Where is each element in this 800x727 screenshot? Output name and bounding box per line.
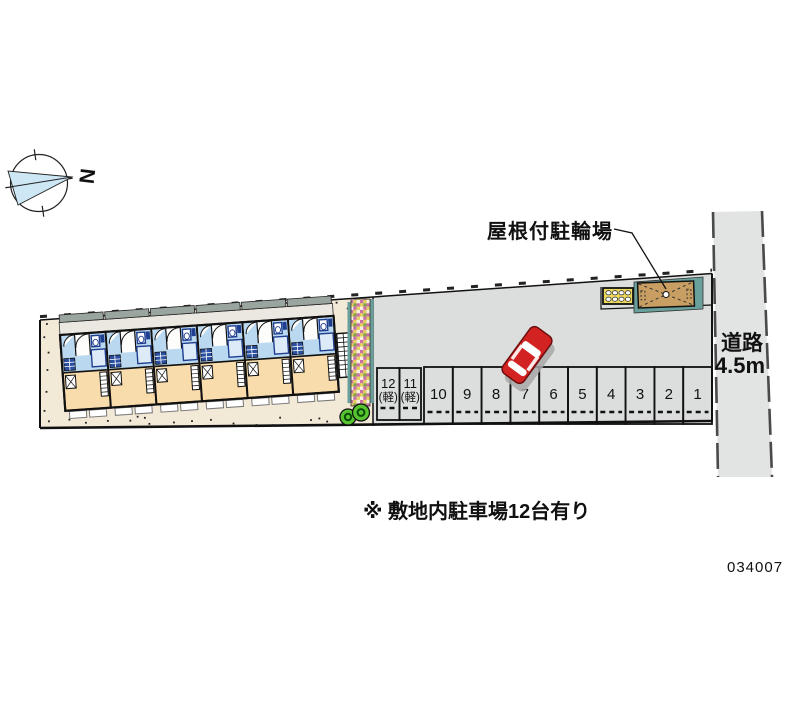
- kei-label: (軽): [379, 391, 398, 404]
- road-name-label: 道路: [721, 331, 764, 355]
- compass: N: [1, 145, 99, 222]
- stall-number: 4: [607, 386, 615, 403]
- planting-strip: [348, 299, 374, 406]
- note-text: ※ 敷地内駐車場12台有り: [363, 499, 590, 523]
- stall-number: 10: [430, 386, 447, 403]
- stall-number: 11: [404, 376, 418, 391]
- stall-number: 12: [381, 376, 395, 391]
- stall-number: 5: [578, 386, 586, 403]
- tree-icon: [353, 404, 370, 421]
- road-width-label: 4.5m: [715, 353, 765, 378]
- stall-number: 1: [693, 386, 701, 403]
- stall-number: 2: [665, 386, 673, 403]
- stall-number: 6: [549, 386, 557, 403]
- bicycle-shed-large: [638, 281, 695, 308]
- site-plan-page: 12(軽)11(軽)10987654321: [0, 0, 800, 727]
- site-plan-svg: 12(軽)11(軽)10987654321: [0, 0, 800, 727]
- stall-number: 9: [463, 386, 471, 403]
- stall-number: 3: [636, 386, 644, 403]
- bicycle-shed-small: [603, 288, 633, 304]
- bicycle-parking: [601, 229, 712, 313]
- building: [59, 295, 355, 419]
- north-label: N: [74, 167, 99, 185]
- drawing-number: 034007: [727, 559, 783, 576]
- bicycle-parking-label: 屋根付駐輪場: [487, 219, 613, 243]
- kei-label: (軽): [401, 391, 420, 404]
- stall-number: 8: [492, 386, 500, 403]
